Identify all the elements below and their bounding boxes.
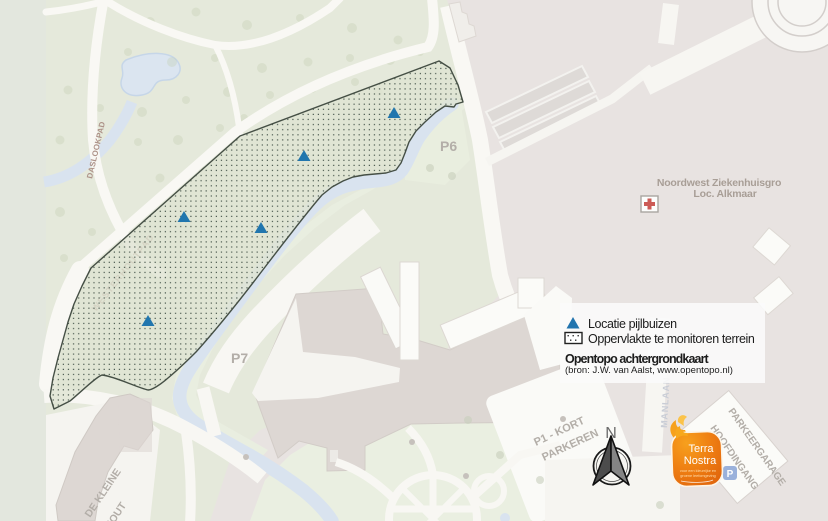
svg-text:Nostra: Nostra	[684, 455, 717, 467]
svg-text:Terra: Terra	[688, 443, 714, 455]
svg-text:Oppervlakte te monitoren terre: Oppervlakte te monitoren terrein	[588, 332, 755, 346]
svg-text:Loc. Alkmaar: Loc. Alkmaar	[693, 188, 756, 200]
svg-text:voor een kleurrijke en: voor een kleurrijke en	[680, 469, 716, 473]
svg-text:P7: P7	[231, 350, 248, 366]
svg-text:P6: P6	[440, 138, 457, 154]
svg-text:N: N	[605, 425, 617, 442]
svg-text:Opentopo achtergrondkaart: Opentopo achtergrondkaart	[565, 352, 710, 366]
svg-text:groene leefomgeving: groene leefomgeving	[680, 474, 715, 478]
svg-text:P: P	[727, 469, 734, 480]
svg-text:(bron: J.W. van Aalst, www.ope: (bron: J.W. van Aalst, www.opentopo.nl)	[565, 365, 733, 376]
svg-text:Locatie pijlbuizen: Locatie pijlbuizen	[588, 317, 677, 331]
